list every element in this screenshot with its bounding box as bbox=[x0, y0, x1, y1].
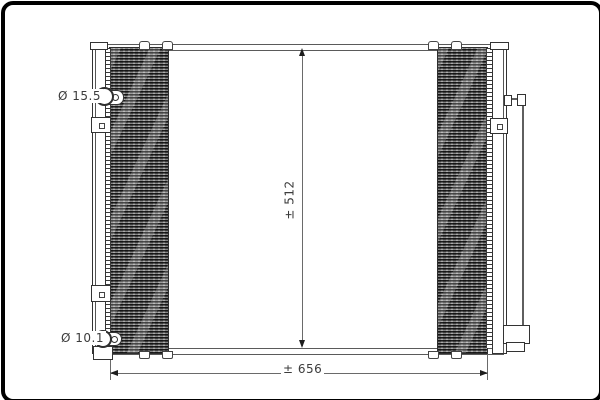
mounting-tab-bottom-3 bbox=[428, 351, 439, 359]
right-side-pipe bbox=[522, 99, 524, 325]
left-tank-bracket-upper bbox=[91, 117, 111, 133]
mounting-tab-bottom-4 bbox=[451, 351, 462, 359]
right-header-tank bbox=[492, 44, 507, 354]
right-core-section bbox=[437, 47, 488, 354]
height-dimension-arrow-top bbox=[299, 48, 305, 56]
width-dimension-ext-right bbox=[487, 354, 488, 380]
mounting-tab-bottom-1 bbox=[139, 351, 150, 359]
width-dimension-arrow-left bbox=[110, 370, 118, 376]
right-top-bracket-clip-2 bbox=[517, 94, 526, 106]
height-dimension-label: ± 512 bbox=[283, 178, 297, 221]
width-dimension-label: ± 656 bbox=[281, 362, 324, 376]
right-tank-bracket bbox=[490, 118, 508, 134]
mounting-tab-top-2 bbox=[162, 41, 173, 50]
mounting-tab-top-4 bbox=[451, 41, 462, 50]
bottom-port-diameter-label: Ø 10.1 bbox=[59, 331, 106, 345]
right-tank-top-cap bbox=[490, 42, 509, 50]
height-dimension-arrow-bottom bbox=[299, 340, 305, 348]
left-tank-bracket-lower bbox=[91, 285, 111, 302]
top-port-diameter-label: Ø 15.5 bbox=[56, 89, 103, 103]
left-tank-top-cap bbox=[90, 42, 108, 50]
right-bottom-foot-pad bbox=[506, 342, 525, 352]
left-bottom-foot bbox=[93, 346, 113, 360]
condenser-drawing-image: Ø 15.5 Ø 10.1 ± 512 ± 656 bbox=[0, 0, 600, 400]
mounting-tab-top-1 bbox=[139, 41, 150, 50]
mounting-tab-top-3 bbox=[428, 41, 439, 50]
width-dimension-arrow-right bbox=[480, 370, 488, 376]
bottom-port-bolt-hole bbox=[111, 336, 118, 343]
height-dimension-line bbox=[302, 50, 303, 346]
right-top-bracket-clip-1 bbox=[504, 95, 512, 106]
mounting-tab-bottom-2 bbox=[162, 351, 173, 359]
